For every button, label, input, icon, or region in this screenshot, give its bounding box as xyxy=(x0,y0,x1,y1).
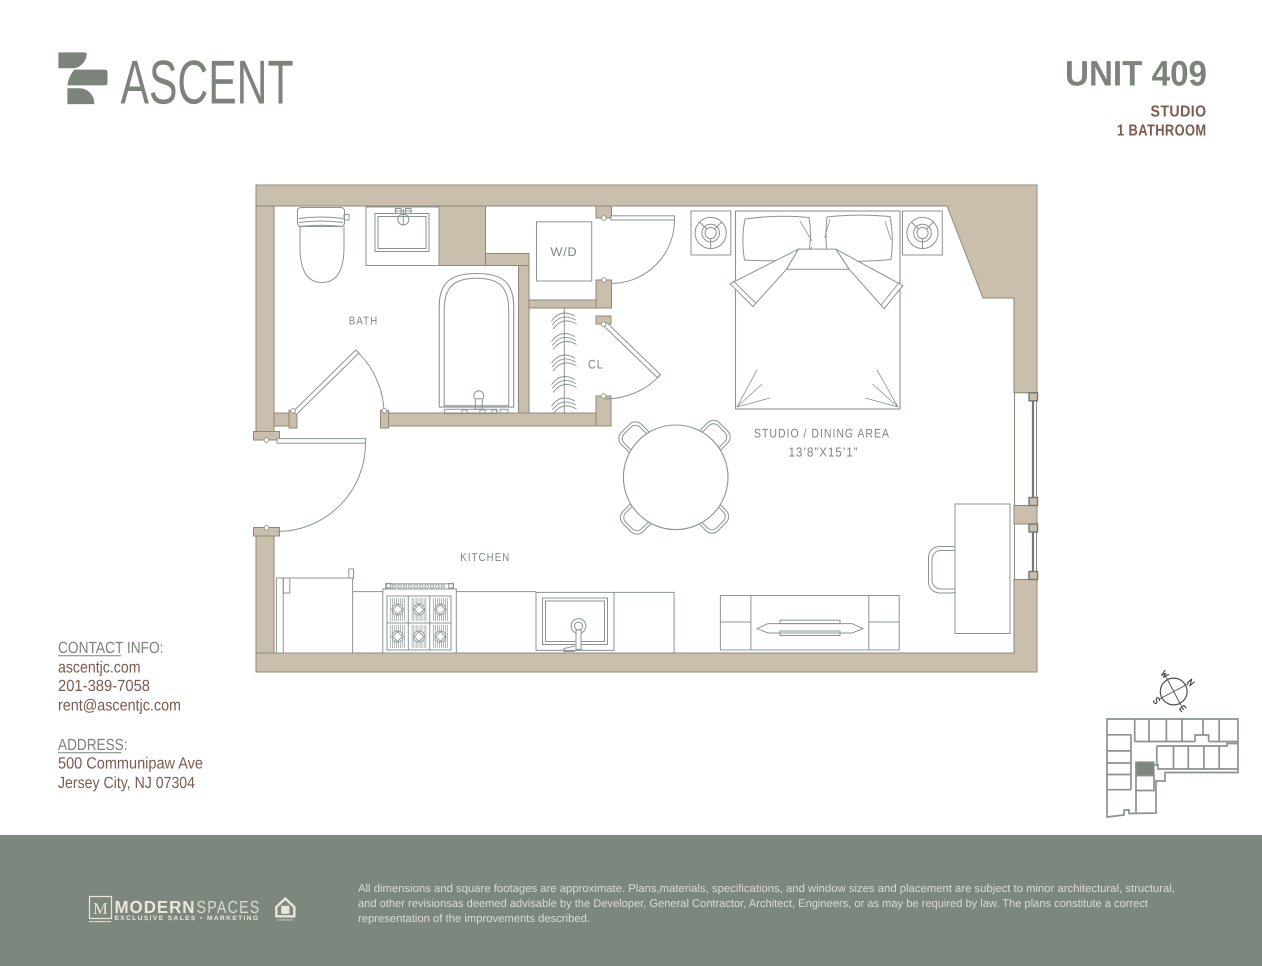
svg-text:M: M xyxy=(93,899,108,918)
svg-text:201-389-7058: 201-389-7058 xyxy=(58,677,150,695)
svg-text:KITCHEN: KITCHEN xyxy=(460,552,510,564)
svg-text:BATH: BATH xyxy=(349,316,379,328)
svg-text:SPACES: SPACES xyxy=(197,897,261,917)
svg-text:1 BATHROOM: 1 BATHROOM xyxy=(1117,123,1207,140)
svg-text:13’8”X15’1”: 13’8”X15’1” xyxy=(789,445,859,460)
svg-text:Jersey City, NJ 07304: Jersey City, NJ 07304 xyxy=(58,774,195,792)
svg-text:representation of the improvem: representation of the improvements descr… xyxy=(358,913,590,925)
svg-text:ASCENT: ASCENT xyxy=(121,49,294,118)
svg-text:STUDIO: STUDIO xyxy=(1151,104,1207,121)
svg-text:CL: CL xyxy=(588,358,604,372)
svg-text:and other revisionsas deemed a: and other revisionsas deemed advisable b… xyxy=(358,898,1149,910)
svg-text:ADDRESS:: ADDRESS: xyxy=(58,736,128,754)
svg-text:W/D: W/D xyxy=(551,245,578,259)
svg-text:EXCLUSIVE SALES • MARKETING: EXCLUSIVE SALES • MARKETING xyxy=(115,915,260,922)
svg-text:All dimensions and square foot: All dimensions and square footages are a… xyxy=(358,883,1175,895)
svg-text:ascentjc.com: ascentjc.com xyxy=(58,659,141,677)
svg-text:STUDIO / DINING AREA: STUDIO / DINING AREA xyxy=(754,427,890,441)
svg-text:CONTACT INFO:: CONTACT INFO: xyxy=(58,639,164,657)
svg-text:UNIT 409: UNIT 409 xyxy=(1065,54,1207,94)
svg-text:500 Communipaw Ave: 500 Communipaw Ave xyxy=(58,755,203,773)
svg-text:rent@ascentjc.com: rent@ascentjc.com xyxy=(58,697,181,715)
svg-text:MODERN: MODERN xyxy=(115,897,196,917)
